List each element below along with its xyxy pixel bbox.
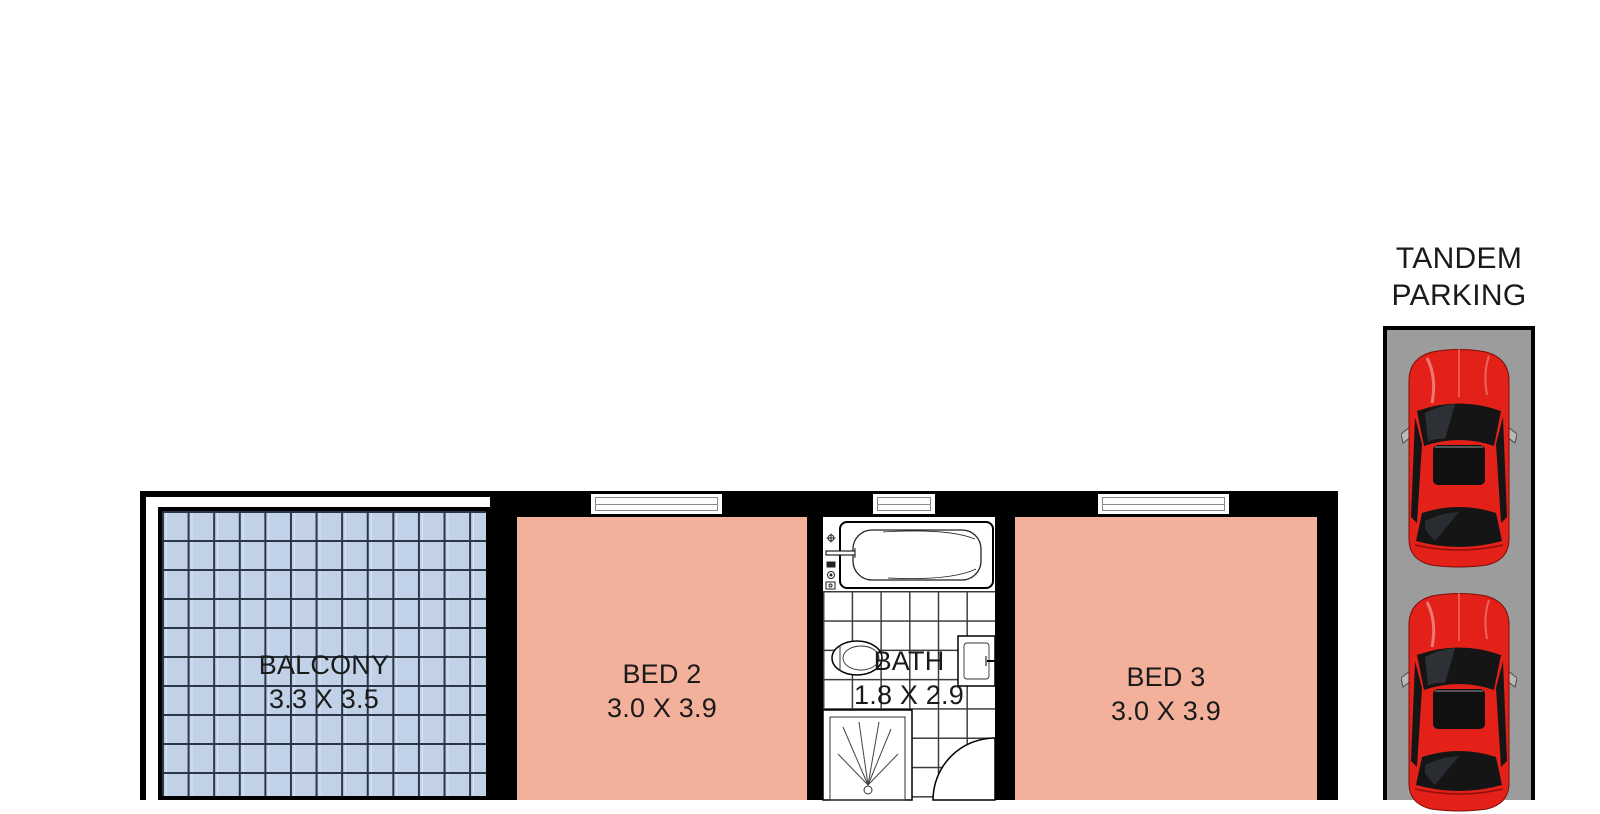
bath-label: BATH 1.8 X 2.9: [823, 644, 995, 712]
balcony-label: BALCONY 3.3 X 3.5: [158, 648, 490, 716]
outer-left-wall: [140, 491, 146, 800]
parking-car-2: [1401, 589, 1517, 814]
bed2-window-icon: [589, 492, 724, 516]
bed2-dimensions: 3.0 X 3.9: [517, 691, 807, 725]
tandem-parking-label: TANDEM PARKING: [1375, 240, 1543, 314]
bed3-room: [1015, 517, 1317, 800]
parking-label-line1: TANDEM: [1375, 240, 1543, 277]
bath-window-icon: [871, 492, 937, 516]
bed3-name: BED 3: [1015, 660, 1317, 694]
door-swing-icon: [933, 738, 995, 800]
bed3-label: BED 3 3.0 X 3.9: [1015, 660, 1317, 728]
balcony-name: BALCONY: [158, 648, 490, 682]
balcony-open-edge-top: [140, 491, 492, 497]
parking-car-1: [1401, 345, 1517, 570]
balcony-dimensions: 3.3 X 3.5: [158, 682, 490, 716]
bed3-dimensions: 3.0 X 3.9: [1015, 694, 1317, 728]
bed2-name: BED 2: [517, 657, 807, 691]
faucet-icons: [826, 534, 836, 590]
bath-dimensions: 1.8 X 2.9: [823, 678, 995, 712]
parking-label-line2: PARKING: [1375, 277, 1543, 314]
bathtub-icon: [826, 522, 993, 588]
shower-icon: [823, 710, 912, 800]
bed3-window-icon: [1096, 492, 1231, 516]
bath-name: BATH: [823, 644, 995, 678]
bed2-label: BED 2 3.0 X 3.9: [517, 657, 807, 725]
